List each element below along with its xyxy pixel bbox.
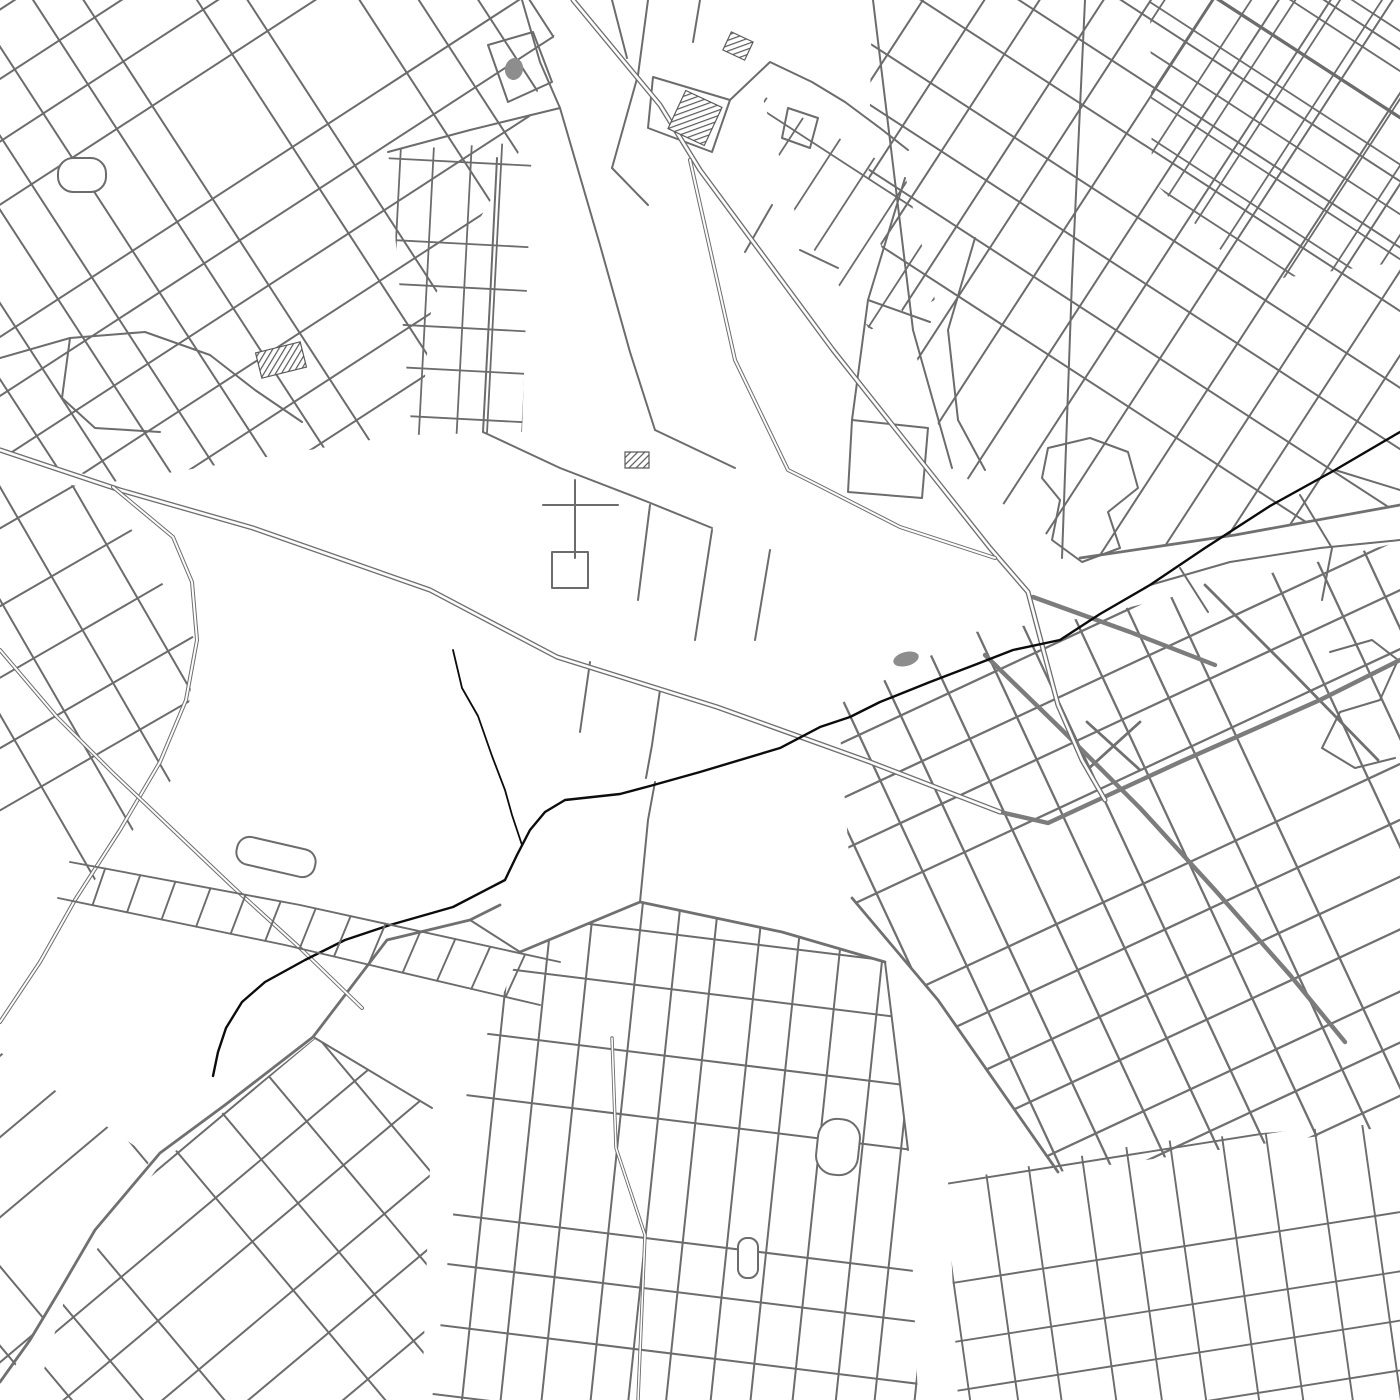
street-map bbox=[0, 0, 1400, 1400]
loop-track bbox=[738, 1238, 758, 1278]
loop-track bbox=[814, 1117, 862, 1177]
map-svg bbox=[0, 0, 1400, 1400]
hatched-building bbox=[625, 452, 649, 468]
loop-track bbox=[58, 158, 106, 192]
